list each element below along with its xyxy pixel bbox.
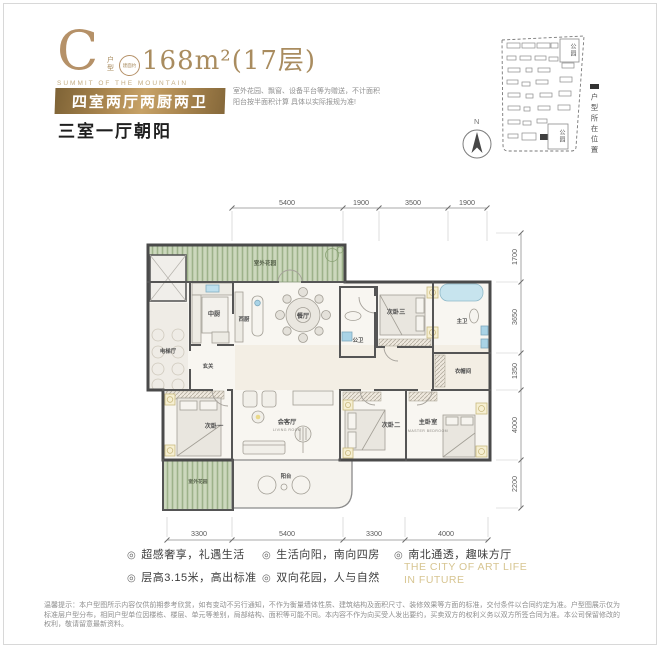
room-label-bath-public: 公卫 xyxy=(353,337,364,344)
compass: N xyxy=(458,113,496,165)
dim-right-5: 2200 xyxy=(510,476,519,492)
dim-right-4: 4000 xyxy=(510,417,519,433)
header-note-line1: 室外花园、飘窗、设备平台等为赠送，不计面积 xyxy=(233,86,380,97)
room-label-foyer: 玄关 xyxy=(203,362,214,370)
dim-right-1: 1700 xyxy=(510,249,519,265)
layout-banner: 四室两厅两厨两卫 xyxy=(55,88,226,114)
dim-top-1: 5400 xyxy=(279,198,295,207)
dim-top-3: 3500 xyxy=(405,198,421,207)
room-label-balcony: 阳台 xyxy=(281,472,292,480)
unit-location-legend: 户型所在位置 xyxy=(589,84,600,169)
dim-top-2: 1900 xyxy=(353,198,369,207)
unit-type-mini-label: 户型 xyxy=(107,57,116,73)
room-label-kitchen-chinese: 中厨 xyxy=(208,310,221,318)
dim-top-4: 1900 xyxy=(459,198,475,207)
bullet-icon: ◎ xyxy=(127,550,136,561)
subtitle-english: SUMMIT OF THE MOUNTAIN xyxy=(57,80,188,87)
feature-item-5: ◎南北通透，趣味方厅 xyxy=(394,546,512,562)
dim-bottom-4: 4000 xyxy=(438,529,454,538)
site-map: 公园 公园 xyxy=(496,30,591,155)
compass-north-label: N xyxy=(474,117,479,126)
room-label-bath-master: 主卫 xyxy=(457,317,468,325)
room-label-bedroom3: 次卧三 xyxy=(387,308,406,316)
room-label-garden-bottom: 室外花园 xyxy=(188,478,207,485)
room-label-master-en: MASTER BEDROOM xyxy=(408,429,448,433)
room-label-living: 会客厅 xyxy=(278,418,297,426)
feature-item-2: ◎层高3.15米，高出标准 xyxy=(127,569,257,585)
slogan-line2: IN FUTURE xyxy=(404,574,534,587)
dim-right-2: 3650 xyxy=(510,309,519,325)
compass-needle-icon xyxy=(472,132,483,153)
corridor-floor xyxy=(235,345,490,390)
feature-item-1: ◎超感奢享，礼遇生活 xyxy=(127,546,245,562)
header-note-line2: 阳台按半面积计算 具体以实际报规为准! xyxy=(233,97,380,108)
elevator-hall-floor xyxy=(148,303,188,390)
header-note: 室外花园、飘窗、设备平台等为赠送，不计面积 阳台按半面积计算 具体以实际报规为准… xyxy=(233,86,380,108)
dim-bottom-3: 3300 xyxy=(366,529,382,538)
room-label-dining: 餐厅 xyxy=(297,312,310,320)
bullet-icon: ◎ xyxy=(394,550,403,561)
location-marker-icon xyxy=(590,84,599,89)
feature-text: 超感奢享，礼遇生活 xyxy=(141,549,245,561)
orientation-title: 三室一厅朝阳 xyxy=(58,117,172,142)
bullet-icon: ◎ xyxy=(262,573,271,584)
room-label-bedroom2: 次卧二 xyxy=(382,421,401,429)
room-label-bedroom1: 次卧一 xyxy=(205,422,224,430)
dim-bottom-1: 3300 xyxy=(191,529,207,538)
room-label-cloakroom: 衣帽间 xyxy=(455,367,472,375)
feature-text: 南北通透，趣味方厅 xyxy=(408,549,512,561)
unit-area: 168m²(17层) xyxy=(142,40,316,77)
feature-text: 生活向阳，南向四房 xyxy=(276,549,380,561)
room-label-living-en: LIVING ROOM xyxy=(273,428,301,432)
dim-bottom-2: 5400 xyxy=(279,529,295,538)
room-label-garden-top: 室外花园 xyxy=(254,259,277,267)
park-label-bottom: 公园 xyxy=(558,129,565,143)
park-label-top: 公园 xyxy=(569,43,576,57)
room-label-master-bedroom: 主卧室 xyxy=(419,418,438,426)
feature-item-4: ◎双向花园，人与自然 xyxy=(262,569,380,585)
bullet-icon: ◎ xyxy=(127,573,136,584)
bullet-icon: ◎ xyxy=(262,550,271,561)
unit-letter: C xyxy=(57,22,98,80)
room-label-elevator-hall: 电梯厅 xyxy=(160,347,177,355)
disclaimer-text: 温馨提示：本户型图所示内容仅供前期参考欣赏，如有变动不另行通知，不作为衡量墙体性… xyxy=(44,601,620,630)
area-seal-icon: 建面约 xyxy=(119,55,140,76)
location-legend-text: 户型所在位置 xyxy=(589,93,600,169)
garden-bottom-area xyxy=(163,460,233,510)
slogan-line1: THE CITY OF ART LIFE xyxy=(404,561,534,574)
feature-text: 双向花园，人与自然 xyxy=(276,572,380,584)
floorplan: 室外花园 中厨 西厨 餐厅 电梯厅 玄关 公卫 次卧三 主卫 衣帽间 次卧一 会… xyxy=(140,195,540,550)
brand-slogan: THE CITY OF ART LIFE IN FUTURE xyxy=(404,561,534,586)
room-label-kitchen-western: 西厨 xyxy=(239,315,250,323)
feature-text: 层高3.15米，高出标准 xyxy=(141,572,256,584)
feature-item-3: ◎生活向阳，南向四房 xyxy=(262,546,380,562)
dim-right-3: 1350 xyxy=(510,363,519,379)
